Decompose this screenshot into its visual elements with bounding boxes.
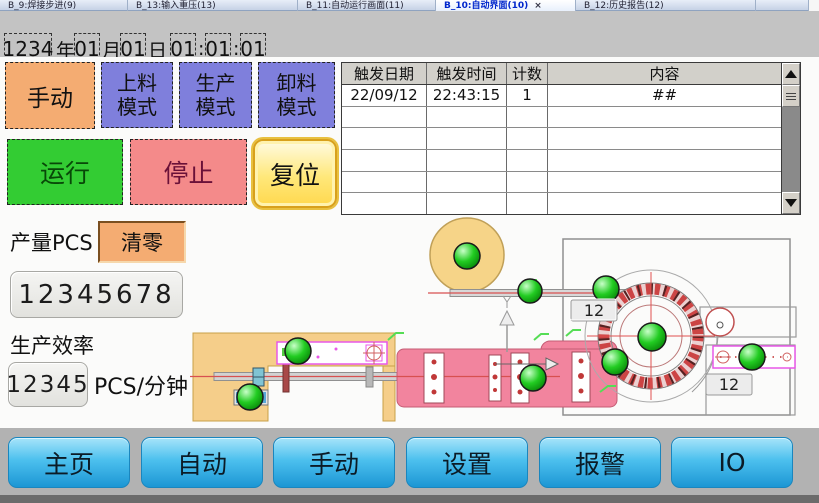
manual-mode-button[interactable]: 手动 [5,62,95,129]
unload-mode-button[interactable]: 卸料模式 [258,62,335,128]
indicator-lamp [518,279,542,303]
up-arrow-icon [500,296,514,352]
station [572,352,590,402]
editor-tab-bar: B_9:焊接步进(9) B_13:输入重压(13) B_11:自动运行画面(11… [0,0,819,11]
table-scrollbar[interactable] [781,63,800,214]
station [424,353,444,403]
hmi-editor-screen: B_9:焊接步进(9) B_13:输入重压(13) B_11:自动运行画面(11… [0,0,819,503]
output-pcs-label: 产量PCS [10,227,93,257]
indicator-lamp [593,276,619,302]
scroll-up-icon[interactable] [782,63,800,85]
tab-screen-11[interactable]: B_11:自动运行画面(11) [298,0,436,11]
nav-home-button[interactable]: 主页 [8,437,130,488]
alarm-event-table: 触发日期 触发时间 计数 内容 22/09/12 22:43:15 1 ## [341,62,801,215]
counter-display-top: 12 [570,299,617,321]
bottom-strip [0,495,819,503]
production-mode-button[interactable]: 生产模式 [179,62,252,128]
nav-alarm-button[interactable]: 报警 [539,437,661,488]
table-header-row: 触发日期 触发时间 计数 内容 [342,63,781,85]
table-row[interactable]: 22/09/12 22:43:15 1 ## [342,85,781,107]
efficiency-label: 生产效率 [10,330,94,360]
clear-count-button[interactable]: 清零 [98,221,186,263]
scrollbar-track[interactable] [782,107,800,192]
svg-text:12: 12 [584,301,604,320]
table-row-empty [342,107,781,129]
table-row-empty [342,172,781,194]
tab-screen-13[interactable]: B_13:输入重压(13) [128,0,298,11]
nav-auto-button[interactable]: 自动 [141,437,263,488]
load-mode-button[interactable]: 上料模式 [101,62,173,128]
indicator-lamp [520,365,546,391]
col-content: 内容 [548,63,781,84]
indicator-lamp [285,338,311,364]
scroll-down-icon[interactable] [782,192,800,214]
efficiency-value-display: 12345 [8,362,88,407]
station [489,355,501,401]
efficiency-unit-label: PCS/分钟 [94,369,188,401]
stop-button[interactable]: 停止 [130,139,247,205]
svg-text:12: 12 [719,375,739,394]
tab-screen-10-active[interactable]: B_10:自动界面(10) × [436,0,576,11]
counter-display-right: 12 [706,374,752,395]
scrollbar-thumb[interactable] [782,85,800,107]
indicator-lamp [454,243,480,269]
nav-manual-button[interactable]: 手动 [273,437,395,488]
indicator-lamp [638,323,666,351]
col-trigger-date: 触发日期 [342,63,427,84]
table-row-empty [342,128,781,150]
col-count: 计数 [507,63,548,84]
top-band: 1234 年 01 月 01 日 01 : 01 : 01 [0,11,819,57]
indicator-lamp [602,349,628,375]
col-trigger-time: 触发时间 [427,63,507,84]
machine-diagram: 12 12 [185,212,819,428]
tab-screen-12[interactable]: B_12:历史报告(12) [576,0,756,11]
tab-screen-9[interactable]: B_9:焊接步进(9) [0,0,128,11]
reset-button[interactable]: 复位 [253,139,337,208]
run-button[interactable]: 运行 [7,139,123,205]
tab-close-icon[interactable]: × [534,1,542,11]
table-row-empty [342,150,781,172]
indicator-lamp [739,344,765,370]
nav-io-button[interactable]: IO [671,437,793,488]
total-count-display: 12345678 [10,271,183,318]
nav-settings-button[interactable]: 设置 [406,437,528,488]
indicator-lamp [237,384,263,410]
table-row-empty [342,193,781,214]
